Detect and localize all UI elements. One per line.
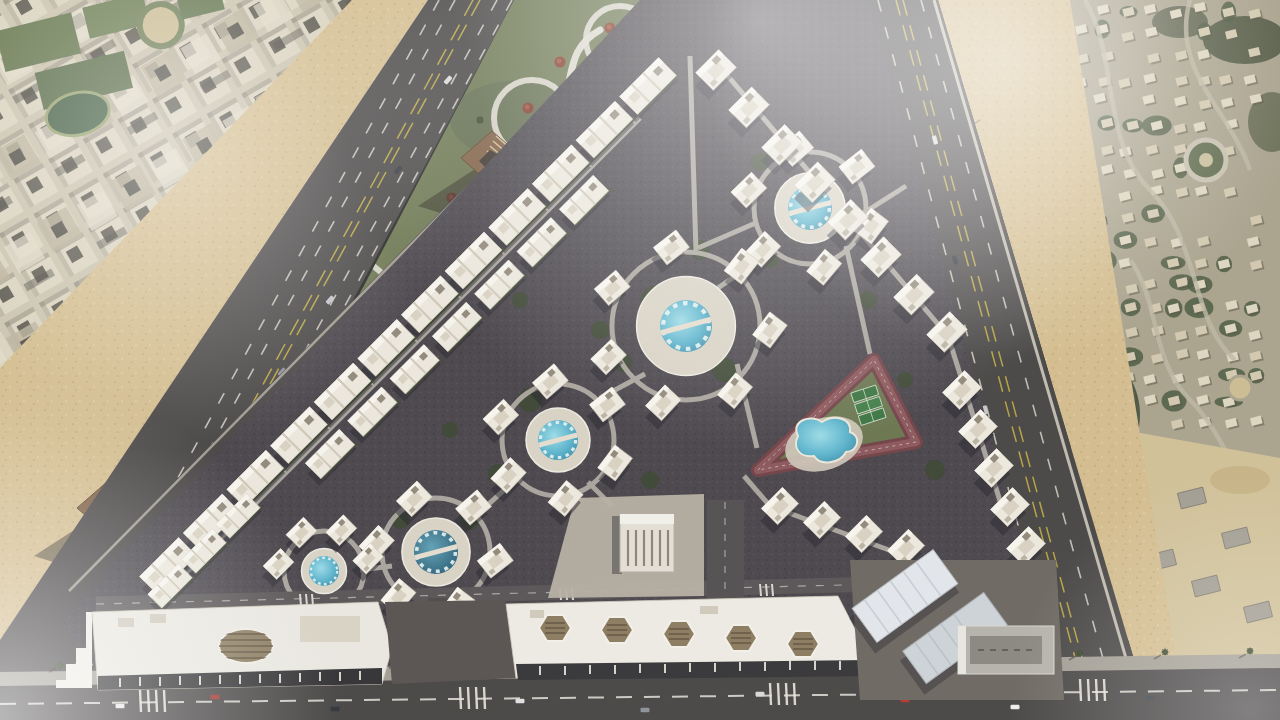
aerial-masterplan-image (0, 0, 1280, 720)
masterplan-scene (0, 0, 1280, 720)
atmospheric-haze (0, 0, 1280, 720)
